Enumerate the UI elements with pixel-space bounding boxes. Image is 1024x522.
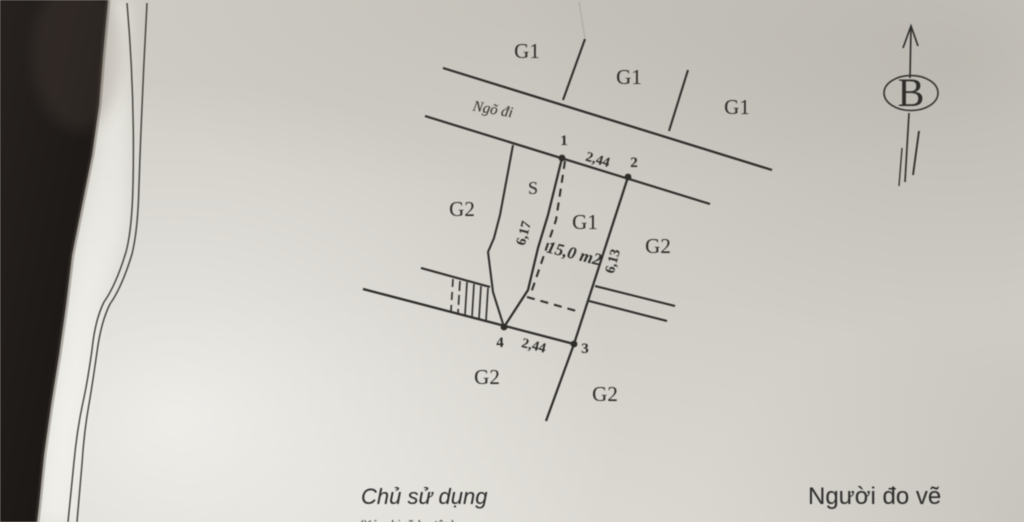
svg-text:G1: G1: [514, 39, 540, 63]
svg-text:G2: G2: [449, 197, 475, 221]
svg-text:G1: G1: [724, 95, 750, 119]
svg-text:1: 1: [560, 133, 568, 149]
svg-text:4: 4: [496, 335, 504, 351]
svg-text:G1: G1: [616, 65, 642, 89]
svg-text:G2: G2: [592, 382, 618, 406]
svg-text:S: S: [528, 178, 538, 198]
svg-text:6,17: 6,17: [514, 220, 535, 248]
svg-text:6,13: 6,13: [603, 248, 624, 276]
svg-text:2,44: 2,44: [584, 150, 612, 171]
svg-text:15,0 m2: 15,0 m2: [545, 238, 604, 270]
svg-text:2: 2: [630, 155, 638, 171]
svg-text:2,44: 2,44: [520, 336, 547, 356]
svg-text:Ngõ đi: Ngõ đi: [471, 98, 515, 121]
svg-text:G2: G2: [474, 365, 500, 389]
svg-text:G2: G2: [645, 234, 671, 258]
svg-text:3: 3: [581, 341, 589, 357]
svg-text:B: B: [898, 70, 925, 115]
svg-text:G1: G1: [572, 210, 598, 234]
